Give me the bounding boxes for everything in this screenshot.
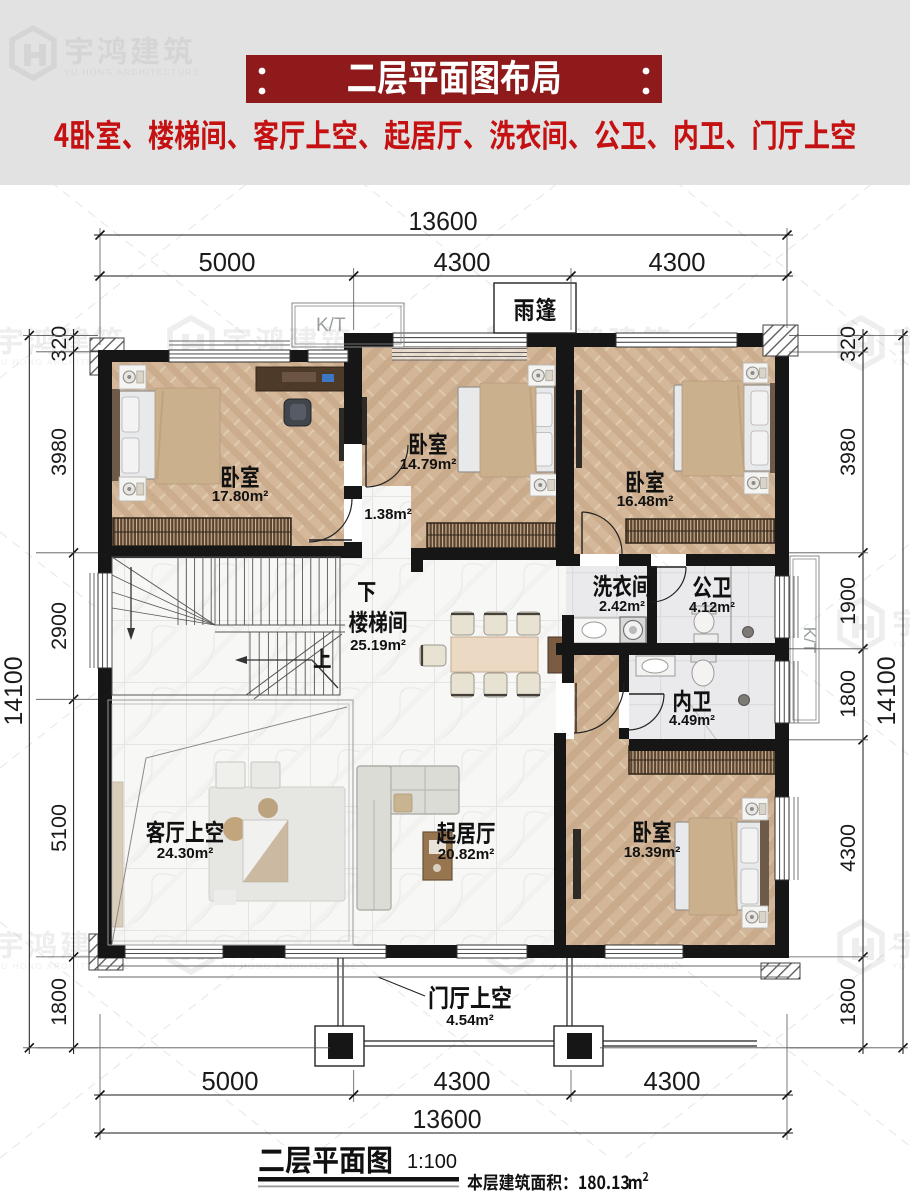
svg-text:4300: 4300	[434, 247, 491, 277]
svg-text:18.39m²: 18.39m²	[624, 844, 681, 861]
svg-text:5100: 5100	[47, 804, 71, 852]
svg-text:24.30m²: 24.30m²	[157, 845, 214, 862]
svg-text:3980: 3980	[836, 428, 860, 476]
svg-text:1900: 1900	[836, 577, 860, 625]
svg-text:14100: 14100	[873, 657, 901, 726]
svg-text:13600: 13600	[413, 1104, 482, 1134]
svg-text:YU HONG ARCHITECTURE: YU HONG ARCHITECTURE	[892, 357, 910, 367]
svg-text:YU HONG ARCHITECTURE: YU HONG ARCHITECTURE	[892, 961, 910, 971]
svg-text:13600: 13600	[409, 206, 478, 236]
svg-text:4.54m²: 4.54m²	[446, 1012, 494, 1029]
svg-text:4300: 4300	[644, 1066, 701, 1096]
svg-text:14.79m²: 14.79m²	[400, 456, 457, 473]
svg-text:17.80m²: 17.80m²	[212, 488, 269, 505]
svg-text:14100: 14100	[0, 657, 28, 726]
svg-text:YU HONG ARCHITECTURE: YU HONG ARCHITECTURE	[892, 639, 910, 649]
svg-text:K/T: K/T	[800, 627, 819, 653]
svg-text:YU HONG ARCHITECTURE: YU HONG ARCHITECTURE	[64, 67, 200, 77]
svg-text:1800: 1800	[836, 670, 860, 718]
svg-text:1800: 1800	[47, 978, 71, 1026]
svg-text:1.38m²: 1.38m²	[364, 506, 412, 523]
svg-text:3980: 3980	[47, 428, 71, 476]
svg-text:K/T: K/T	[316, 315, 346, 336]
svg-text:4300: 4300	[434, 1066, 491, 1096]
svg-text:2900: 2900	[47, 602, 71, 650]
svg-text:5000: 5000	[199, 247, 256, 277]
svg-text:320: 320	[836, 326, 860, 362]
svg-text:4300: 4300	[836, 824, 860, 872]
svg-text:16.48m²: 16.48m²	[617, 493, 674, 510]
svg-text:320: 320	[47, 326, 71, 362]
svg-text:20.82m²: 20.82m²	[438, 846, 495, 863]
svg-text:25.19m²: 25.19m²	[350, 637, 406, 654]
svg-text:2.42m²: 2.42m²	[599, 599, 645, 615]
svg-text:1800: 1800	[836, 978, 860, 1026]
svg-text:5000: 5000	[202, 1066, 259, 1096]
svg-text:1:100: 1:100	[407, 1151, 457, 1173]
svg-text:4300: 4300	[649, 247, 706, 277]
svg-text:4.12m²: 4.12m²	[689, 600, 735, 616]
svg-text:4.49m²: 4.49m²	[669, 713, 715, 729]
